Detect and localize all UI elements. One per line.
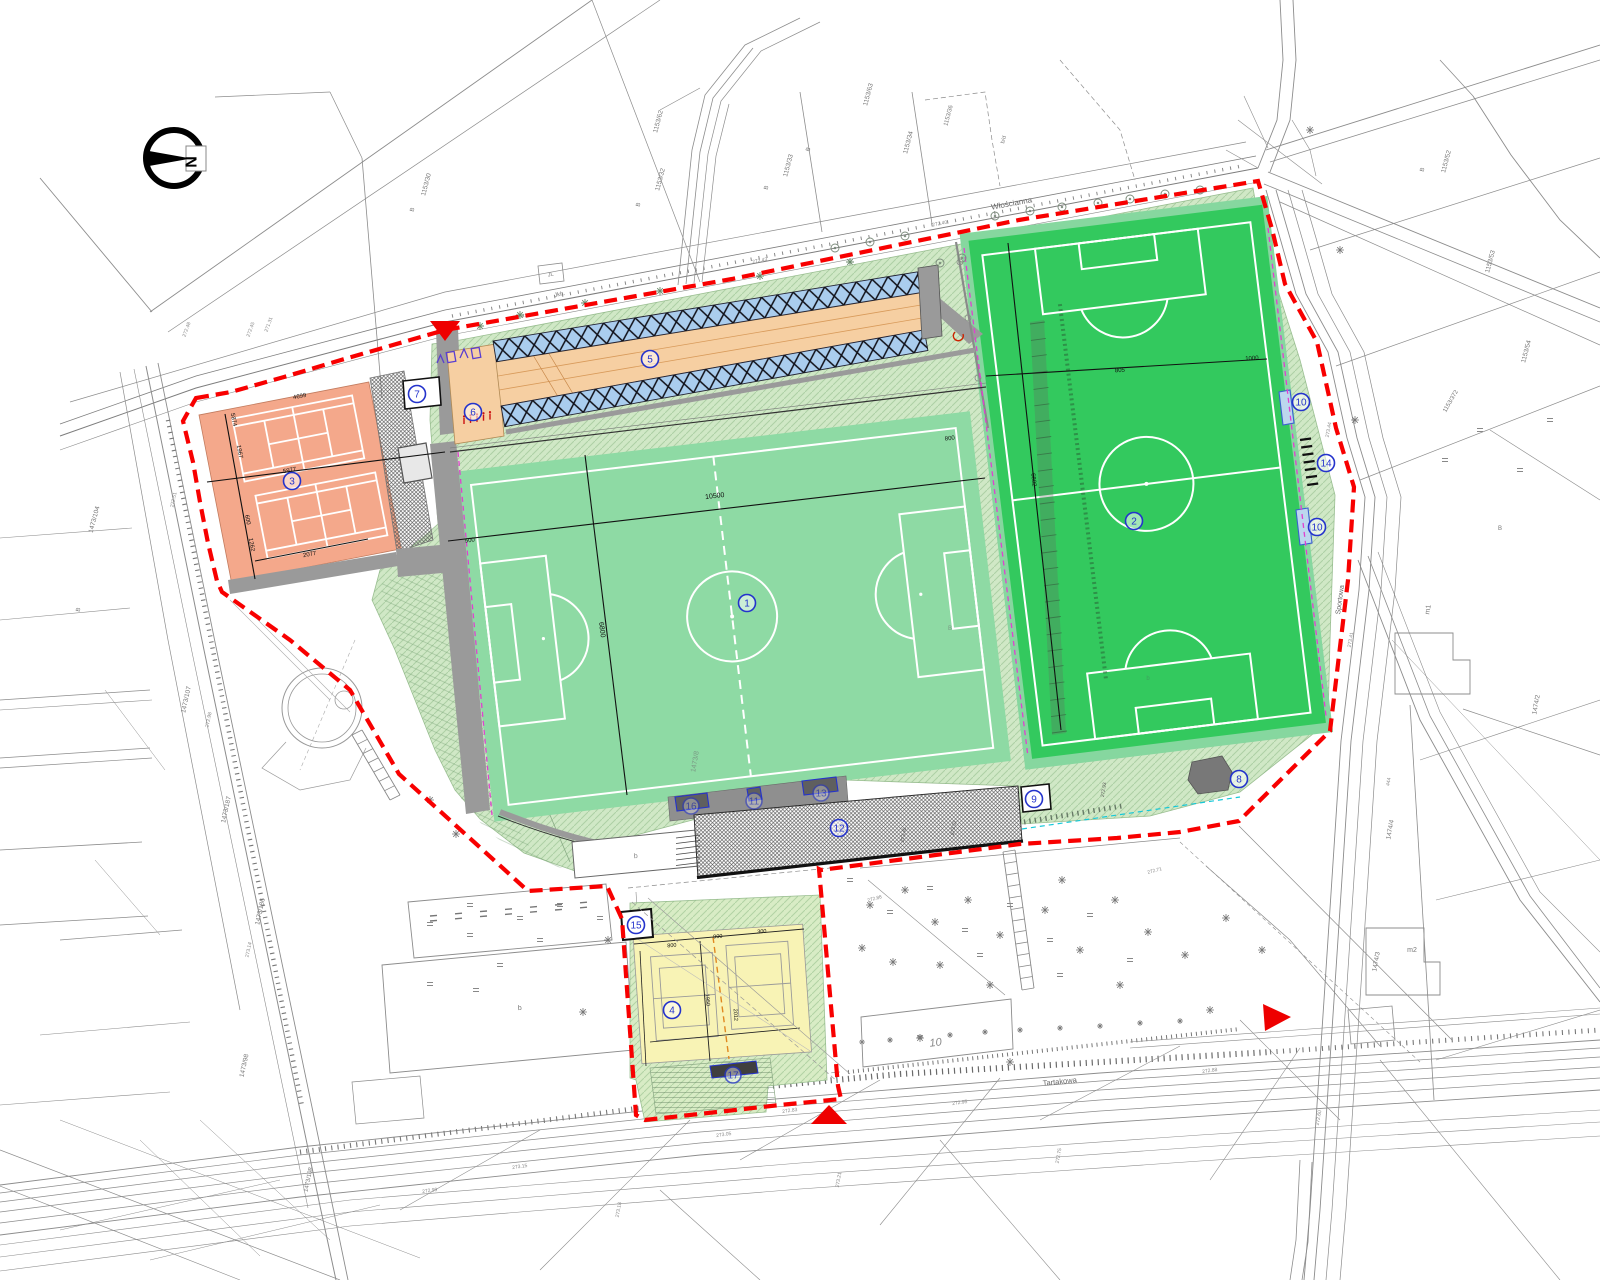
svg-text:5: 5 bbox=[647, 355, 653, 366]
svg-text:b: b bbox=[518, 1005, 523, 1012]
svg-text:1950: 1950 bbox=[704, 994, 711, 1007]
svg-text:800: 800 bbox=[945, 435, 956, 442]
svg-text:16: 16 bbox=[685, 802, 697, 813]
svg-text:N: N bbox=[184, 156, 201, 168]
svg-text:6: 6 bbox=[470, 408, 476, 419]
svg-text:B: B bbox=[1498, 526, 1502, 532]
svg-text:17: 17 bbox=[727, 1071, 739, 1082]
svg-text:8: 8 bbox=[1236, 775, 1242, 786]
svg-text:10: 10 bbox=[929, 1036, 943, 1050]
svg-text:B: B bbox=[948, 626, 952, 632]
svg-text:2012: 2012 bbox=[732, 1009, 739, 1022]
svg-text:805: 805 bbox=[1115, 368, 1126, 375]
svg-text:3: 3 bbox=[289, 477, 295, 488]
svg-text:4: 4 bbox=[669, 1006, 675, 1017]
svg-text:m2: m2 bbox=[1407, 947, 1417, 954]
svg-text:14: 14 bbox=[1320, 459, 1332, 470]
svg-text:800: 800 bbox=[667, 943, 677, 950]
svg-text:10: 10 bbox=[1311, 523, 1323, 534]
svg-text:10: 10 bbox=[1295, 398, 1307, 409]
svg-text:300: 300 bbox=[757, 929, 767, 936]
svg-text:12: 12 bbox=[833, 824, 845, 835]
svg-text:2: 2 bbox=[1131, 517, 1137, 528]
svg-text:900: 900 bbox=[713, 934, 723, 941]
svg-text:1000: 1000 bbox=[1245, 356, 1259, 363]
svg-text:1: 1 bbox=[744, 599, 750, 610]
svg-text:JL: JL bbox=[547, 271, 554, 278]
svg-text:15: 15 bbox=[630, 921, 642, 932]
svg-text:7: 7 bbox=[414, 390, 420, 401]
svg-text:9: 9 bbox=[1031, 795, 1037, 806]
svg-text:500: 500 bbox=[465, 537, 476, 544]
svg-text:11: 11 bbox=[749, 797, 760, 808]
svg-text:13: 13 bbox=[815, 789, 827, 800]
